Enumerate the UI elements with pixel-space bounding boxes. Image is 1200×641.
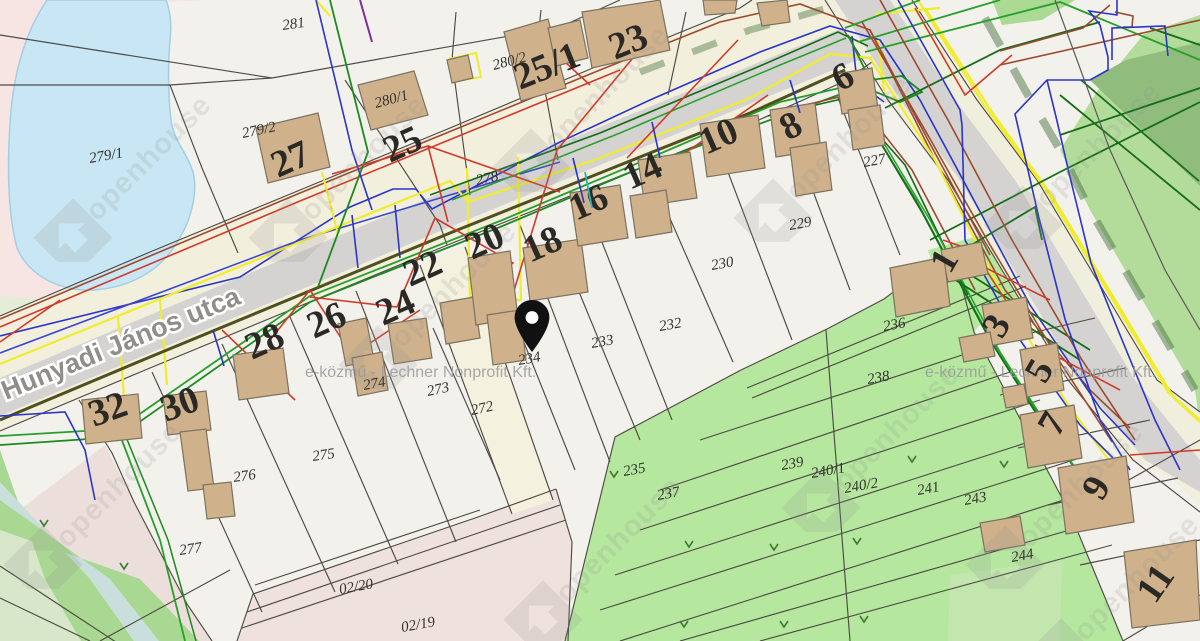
svg-text:275: 275 — [311, 446, 336, 465]
svg-text:277: 277 — [178, 540, 204, 559]
svg-text:e-közmű - Lechner Nonprofit Kf: e-közmű - Lechner Nonprofit Kft. — [305, 364, 536, 381]
svg-text:281: 281 — [281, 15, 306, 34]
svg-text:276: 276 — [232, 467, 257, 486]
